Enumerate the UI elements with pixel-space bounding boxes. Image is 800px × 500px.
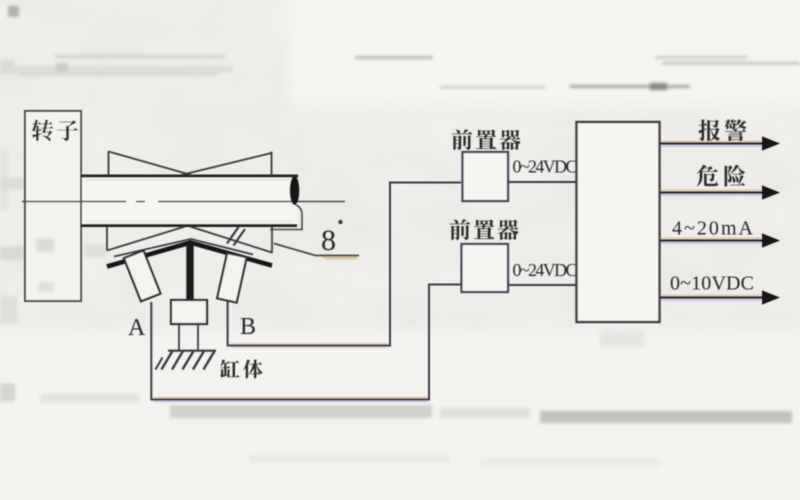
svg-text:0~24VDC: 0~24VDC bbox=[513, 260, 578, 280]
svg-text:0~10VDC: 0~10VDC bbox=[670, 273, 754, 295]
svg-text:B: B bbox=[240, 314, 256, 340]
svg-text:4~20mA: 4~20mA bbox=[672, 218, 754, 240]
svg-text:0~24VDC: 0~24VDC bbox=[513, 157, 578, 177]
svg-text:8: 8 bbox=[321, 224, 336, 257]
svg-text:A: A bbox=[128, 315, 146, 341]
